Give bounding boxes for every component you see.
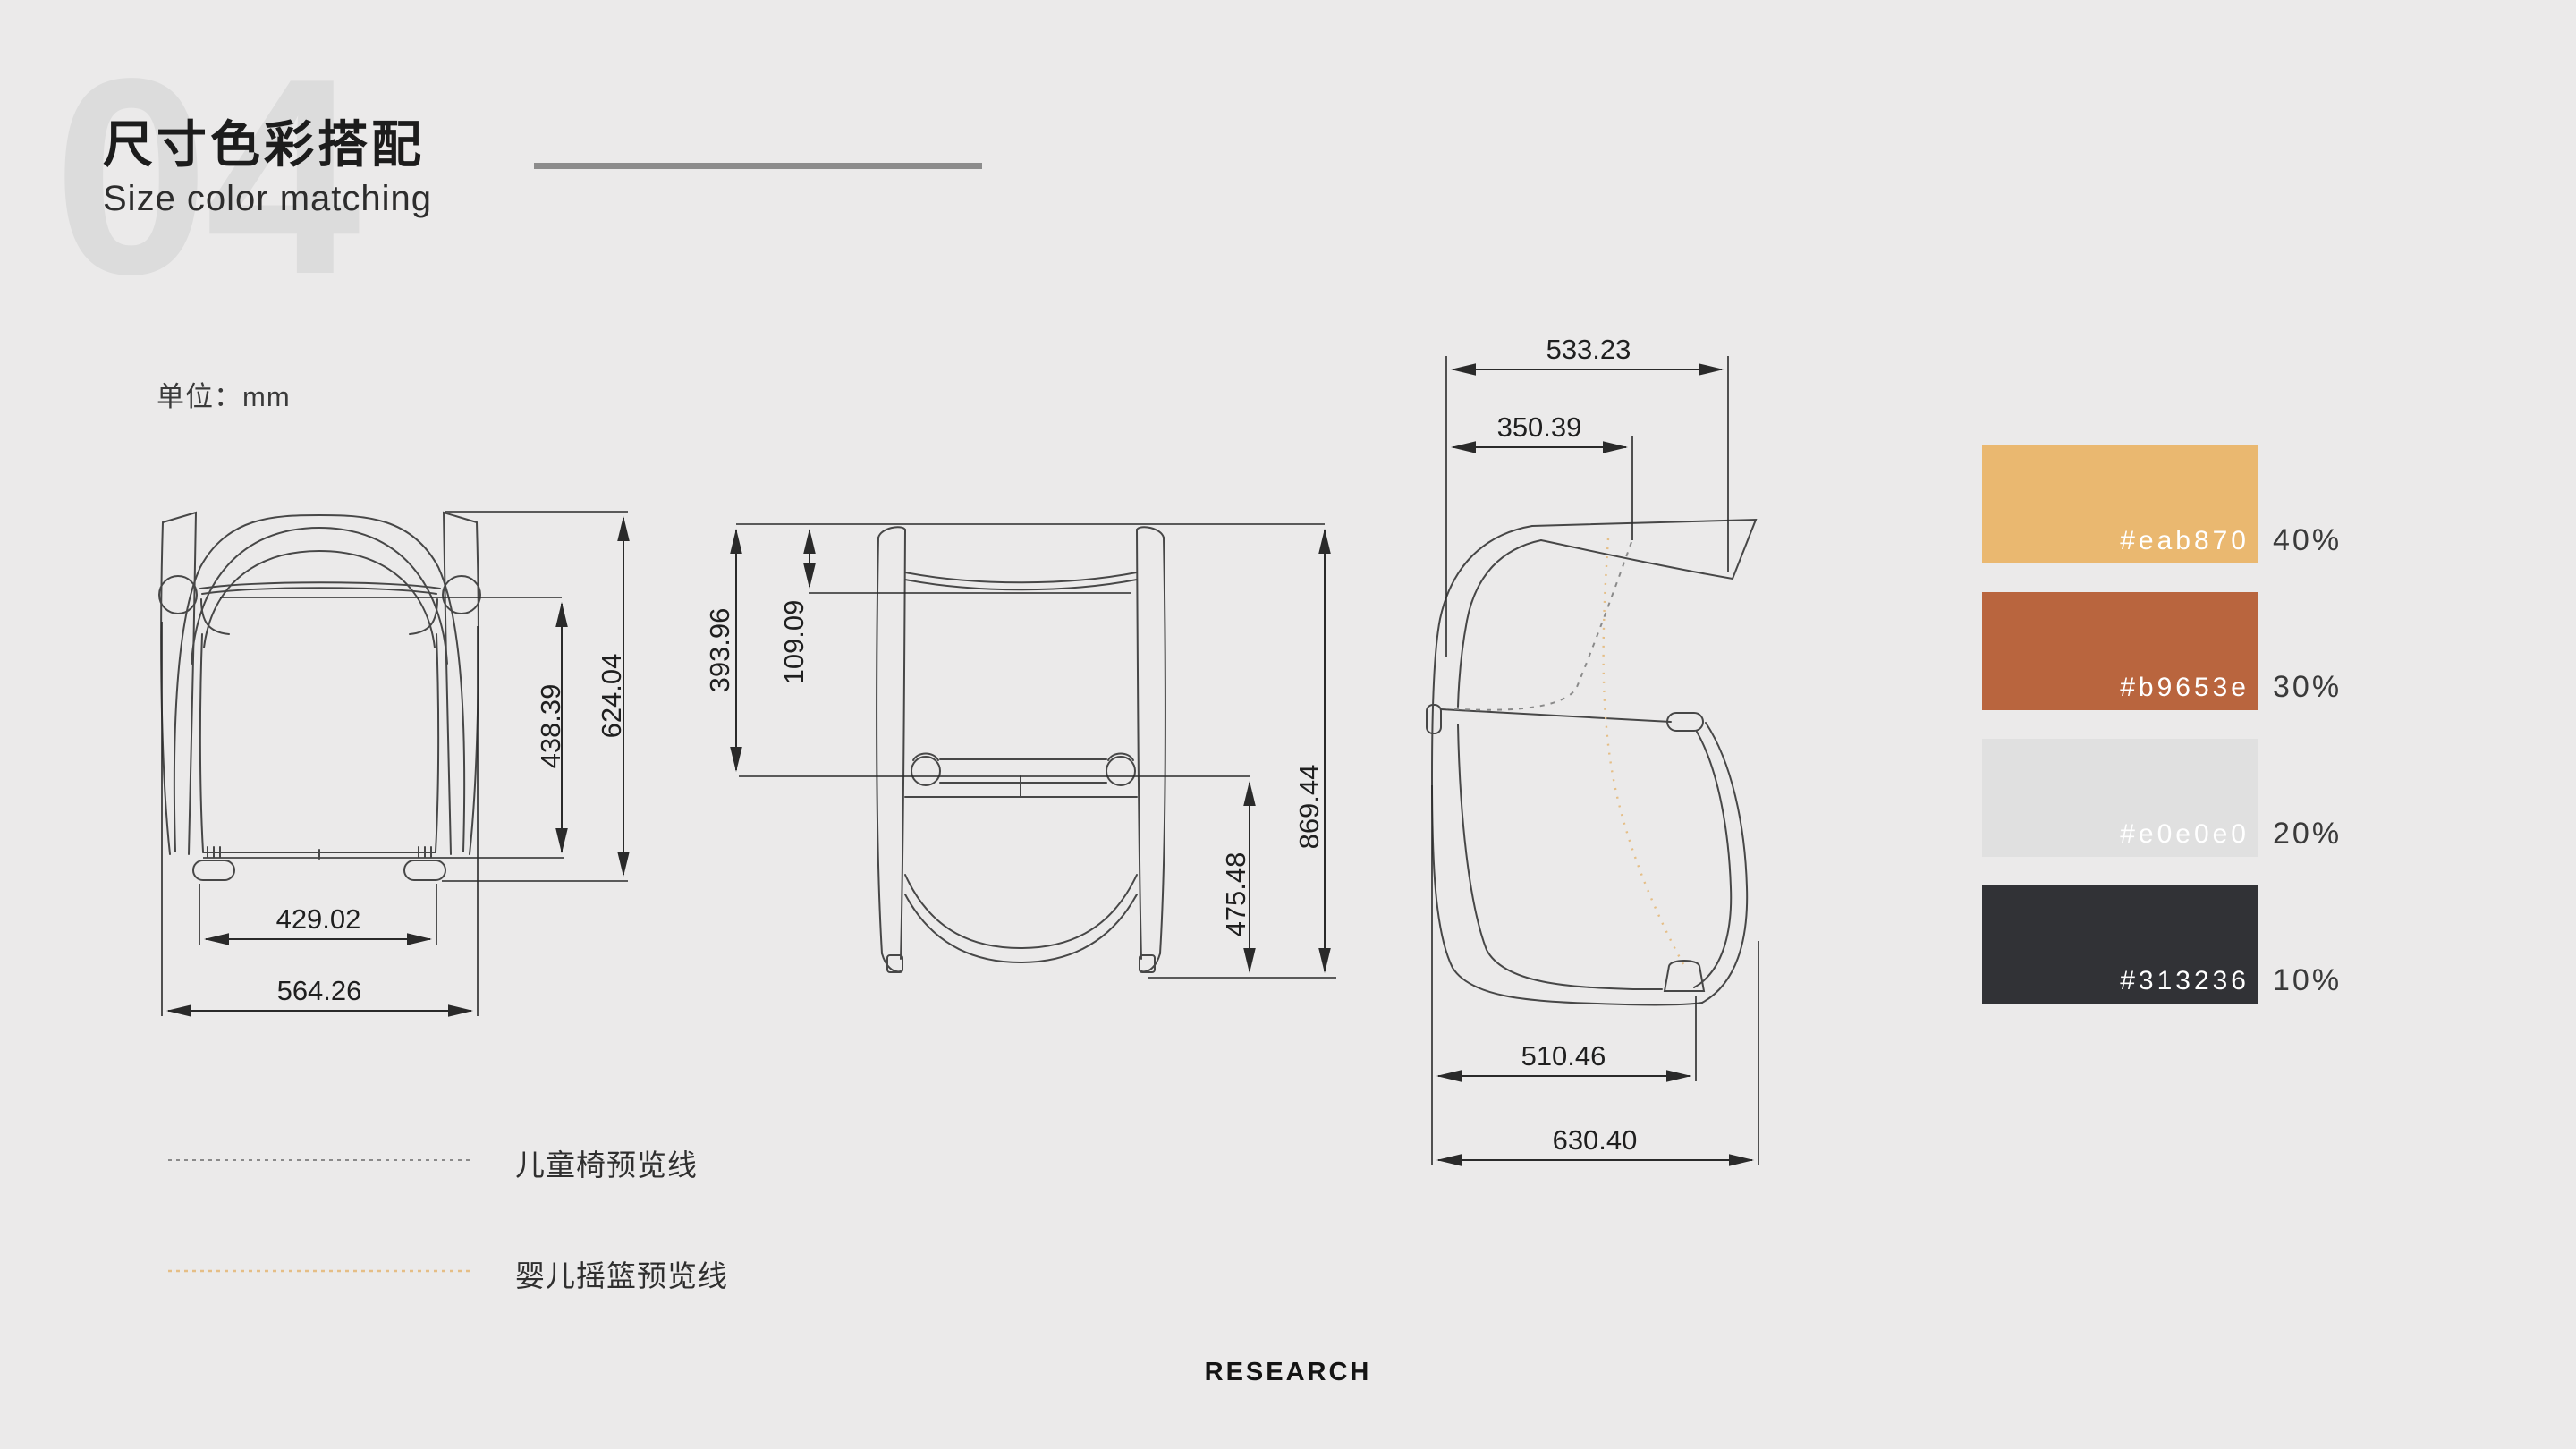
palette-row: #e0e0e0 20% xyxy=(1982,739,2258,857)
dim-label-side-top-width: 533.23 xyxy=(1546,334,1631,365)
dim-label-side-backrest-width: 350.39 xyxy=(1497,411,1582,443)
swatch-percent-label: 10% xyxy=(2273,963,2342,998)
side-view-drawing: 533.23 350.39 510.46 630.40 xyxy=(1427,334,1758,1165)
infant-cradle-preview-curve xyxy=(1604,538,1683,964)
footer-label: RESEARCH xyxy=(0,1358,2576,1387)
swatch-percent-label: 20% xyxy=(2273,817,2342,852)
swatch-hex-label: #b9653e xyxy=(2120,673,2250,703)
dim-label-back-frame-top: 393.96 xyxy=(704,608,735,693)
dim-label-side-base-width: 510.46 xyxy=(1521,1040,1606,1072)
dim-label-front-total-height: 624.04 xyxy=(596,654,627,739)
legend-label-infant-cradle: 婴儿摇篮预览线 xyxy=(515,1252,728,1295)
palette-row: #b9653e 30% xyxy=(1982,592,2258,710)
dim-label-side-total-width: 630.40 xyxy=(1553,1124,1638,1156)
palette-row: #313236 10% xyxy=(1982,885,2258,1004)
dim-label-front-total-width: 564.26 xyxy=(277,975,362,1006)
swatch-hex-label: #eab870 xyxy=(2120,526,2250,556)
children-chair-preview-curve xyxy=(1446,542,1631,710)
color-palette: #eab870 40% #b9653e 30% #e0e0e0 20% #313… xyxy=(1982,445,2358,1032)
dim-label-front-inner-width: 429.02 xyxy=(276,903,361,935)
dim-label-back-total-height: 869.44 xyxy=(1293,765,1325,850)
dim-label-back-under-seat: 475.48 xyxy=(1220,852,1251,937)
swatch-percent-label: 40% xyxy=(2273,523,2342,558)
dim-label-front-back-height: 438.39 xyxy=(535,684,566,769)
legend-label-children-chair: 儿童椅预览线 xyxy=(515,1141,698,1184)
slide: 04 尺寸色彩搭配 Size color matching 单位：mm xyxy=(0,0,2576,1449)
dim-label-back-headrest-gap: 109.09 xyxy=(778,600,809,685)
swatch-hex-label: #313236 xyxy=(2120,966,2250,996)
palette-row: #eab870 40% xyxy=(1982,445,2258,563)
front-view-drawing: 624.04 438.39 429.02 564.26 xyxy=(159,512,628,1016)
swatch-hex-label: #e0e0e0 xyxy=(2120,819,2250,850)
back-view-drawing: 393.96 109.09 475.48 869.44 xyxy=(704,524,1336,978)
swatch-percent-label: 30% xyxy=(2273,670,2342,705)
